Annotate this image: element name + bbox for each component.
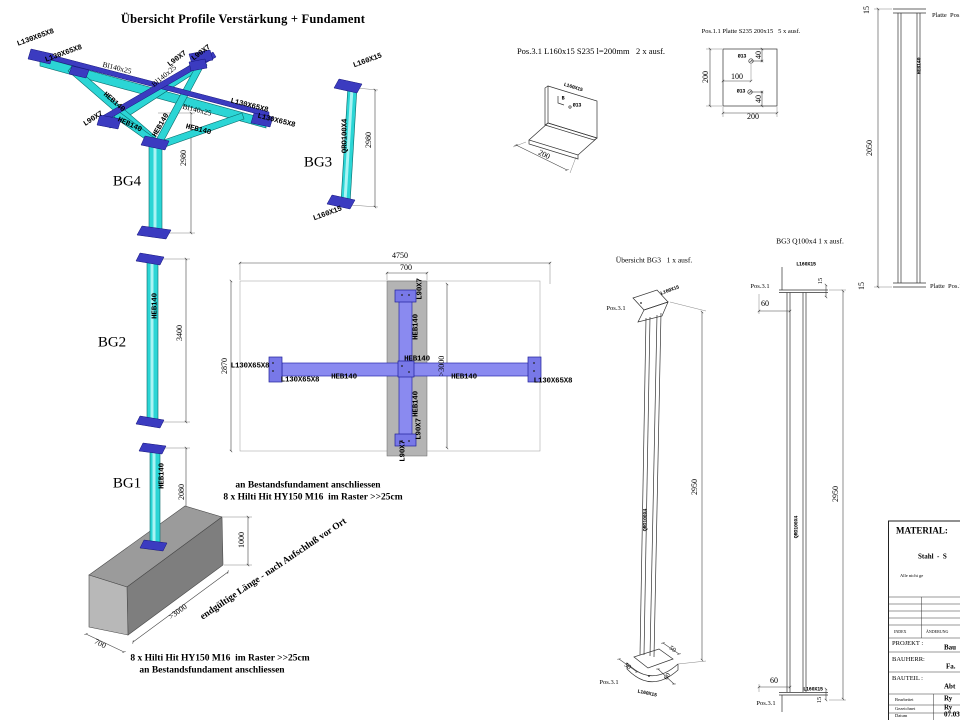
label-ubg3-dim-2950: 2950 bbox=[691, 479, 699, 495]
label-bg1-note-diag: endgültige Länge - nach Aufschluß vor Or… bbox=[199, 517, 349, 622]
label-bg4-lbl-l130-b: L130X65X8 bbox=[45, 45, 84, 65]
label-tb-projekt-value: Bau bbox=[944, 645, 956, 652]
label-rightcol-dim-bottom: 15 bbox=[858, 282, 866, 290]
label-tb-bearbeitet-value: Ry bbox=[944, 696, 952, 703]
cad-drawing-sheet: Übersicht Profile Verstärkung + Fundamen… bbox=[0, 0, 960, 720]
label-bg1-note-bottom1: 8 x Hilti Hit HY150 M16 im Raster >>25cm bbox=[130, 654, 309, 664]
label-pos11-dim-left: 200 bbox=[702, 71, 710, 83]
label-bg4-lbl-bl140-a: Bl140x25 bbox=[102, 61, 133, 75]
label-bg4-lbl-heb-c: HEB140 bbox=[152, 113, 171, 139]
label-plan-lbl-l130-left2: L130X65X8 bbox=[281, 377, 320, 385]
label-rightcol-lbl-plate-bottom: Platte Pos.1 bbox=[930, 284, 960, 291]
label-elev-pos-top: Pos.3.1 bbox=[750, 284, 769, 291]
label-plan-dim-4750: 4750 bbox=[392, 252, 408, 260]
label-bg4-lbl-bl140-b: Bl140x25 bbox=[150, 64, 177, 89]
label-tb-datum-value: 07.03.16 bbox=[944, 712, 960, 719]
label-bg2-dim-height: 3400 bbox=[176, 325, 184, 341]
label-plan-lbl-l130-left1: L130X65X8 bbox=[231, 363, 270, 371]
label-bg3-dim-height: 2980 bbox=[365, 132, 373, 148]
label-rightcol-lbl-shaft: HEB140 bbox=[918, 58, 923, 75]
label-tb-bauteil-value: Abt bbox=[944, 684, 955, 691]
label-pos31-heading: Pos.3.1 L160x15 S235 l=200mm 2 x ausf. bbox=[517, 47, 665, 56]
label-elev-dim-60-bottom: 60 bbox=[770, 677, 778, 685]
label-rightcol-dim-top: 15 bbox=[863, 6, 871, 14]
label-bg4-lbl-bl140-c: Bl140x25 bbox=[182, 103, 213, 117]
label-pos11-heading: Pos.1.1 Platte S235 200x15 5 x ausf. bbox=[702, 29, 801, 36]
label-ubg3-heading: Übersicht BG3 1 x ausf. bbox=[616, 256, 692, 264]
label-plan-lbl-l90-bottom: L90X7 bbox=[416, 418, 424, 440]
label-bg4-lbl-heb-a: HEB140 bbox=[101, 92, 125, 115]
label-bg1-lbl-shaft: HEB140 bbox=[159, 463, 167, 489]
label-pos11-dim-bottom: 200 bbox=[747, 113, 759, 121]
annotation-labels-layer: Übersicht Profile Verstärkung + Fundamen… bbox=[0, 0, 960, 720]
label-elev-dim-15-bottom: 15 bbox=[817, 697, 824, 704]
label-tb-gezeichnet-label: Gezeichnet bbox=[895, 707, 915, 712]
label-ubg3-dim-60: 60 bbox=[663, 672, 672, 681]
label-tb-bauherr-value: Fa. bbox=[946, 664, 956, 671]
label-tb-material-value: Stahl - S bbox=[918, 554, 947, 561]
label-plan-dim-3000: >3000 bbox=[438, 356, 446, 377]
label-bg1-dim-3000: >3000 bbox=[167, 603, 188, 622]
label-tb-material-note: Alle nicht ge bbox=[900, 574, 923, 579]
label-bg4-name: BG4 bbox=[113, 175, 141, 190]
label-pos31-lbl-angle: L160X15 bbox=[563, 83, 583, 94]
label-rightcol-lbl-plate-top: Platte Pos. bbox=[932, 13, 960, 20]
label-plan-dim-2870: 2870 bbox=[221, 358, 229, 374]
label-ubg3-dim-50a: 50 bbox=[622, 662, 631, 671]
label-elev-dim-2950: 2950 bbox=[832, 486, 840, 502]
label-bg1-dim-2080: 2080 bbox=[178, 484, 186, 500]
label-title: Übersicht Profile Verstärkung + Fundamen… bbox=[121, 13, 365, 26]
label-elev-pos-bottom: Pos.3.1 bbox=[756, 701, 775, 708]
label-bg1-note-top2: 8 x Hilti Hit HY150 M16 im Raster >>25cm bbox=[223, 493, 402, 503]
label-bg4-lbl-l90-c: L90X7 bbox=[83, 111, 105, 129]
label-plan-lbl-heb-bottom: HEB140 bbox=[413, 391, 421, 417]
label-plan-lbl-l90-bottom2: L90X7 bbox=[400, 440, 408, 462]
label-plan-lbl-heb-right: HEB140 bbox=[451, 374, 477, 382]
label-bg1-dim-1000: 1000 bbox=[238, 532, 246, 548]
label-pos11-dim-40a: 40 bbox=[755, 51, 763, 59]
label-bg4-lbl-l130-d: L130X65X8 bbox=[256, 114, 295, 131]
label-plan-lbl-heb-center: HEB140 bbox=[404, 356, 430, 364]
label-bg3-lbl-shaft: QRO100X4 bbox=[342, 119, 350, 153]
label-pos31-dim-200: 200 bbox=[537, 149, 551, 161]
label-tb-bauteil-label: BAUTEIL : bbox=[892, 676, 923, 683]
label-ubg3-pos-bottom: Pos.3.1 bbox=[599, 680, 618, 687]
label-tb-bauherr-label: BAUHERR: bbox=[892, 657, 925, 664]
label-plan-lbl-l130-right: L130X65X8 bbox=[534, 378, 573, 386]
label-tb-aenderung-label: ÄNDERUNG bbox=[926, 630, 948, 634]
label-bg1-note-top1: an Bestandsfundament anschliessen bbox=[235, 481, 380, 491]
label-rightcol-dim-mid: 2050 bbox=[866, 140, 874, 156]
label-bg4-lbl-heb-b: HEB140 bbox=[116, 117, 143, 135]
label-elev-dim-15-top: 15 bbox=[818, 278, 825, 285]
label-bg3-note: BG3 Q100x4 1 x ausf. bbox=[776, 237, 844, 245]
label-tb-index-label: INDEX bbox=[894, 630, 906, 634]
label-tb-projekt-label: PROJEKT : bbox=[892, 641, 923, 648]
label-ubg3-pos-top: Pos.3.1 bbox=[606, 306, 625, 313]
label-pos31-lbl-hole: Ø13 bbox=[573, 104, 581, 109]
label-bg2-lbl-shaft: HEB140 bbox=[152, 293, 160, 319]
label-bg4-lbl-l130-a: L130X65X8 bbox=[17, 29, 56, 49]
label-tb-bearbeitet-label: Bearbeitet bbox=[895, 698, 914, 703]
label-plan-lbl-heb-top: HEB140 bbox=[413, 314, 421, 340]
label-bg4-dim-height: 2980 bbox=[180, 150, 188, 166]
label-elev-dim-60-top: 60 bbox=[761, 300, 769, 308]
label-elev-lbl-bracket-top: L160X15 bbox=[796, 263, 816, 268]
label-tb-material: MATERIAL: bbox=[896, 527, 948, 536]
label-pos31-lbl-b: B bbox=[562, 97, 565, 102]
label-bg2-name: BG2 bbox=[98, 336, 126, 351]
label-bg1-dim-700: 700 bbox=[93, 638, 107, 651]
label-ubg3-lbl-bracket-bottom: L160X15 bbox=[637, 690, 657, 699]
label-elev-lbl-shaft: QRO100X4 bbox=[795, 516, 800, 538]
label-ubg3-lbl-bracket-top: L160X15 bbox=[660, 285, 680, 296]
label-bg3-lbl-plate-top: L160X15 bbox=[353, 53, 384, 70]
label-bg3-name: BG3 bbox=[304, 156, 332, 171]
label-tb-datum-label: Datum bbox=[895, 714, 907, 719]
label-pos11-hole-b: Ø13 bbox=[737, 90, 745, 95]
label-elev-lbl-bracket-bottom: L160X15 bbox=[803, 688, 823, 693]
label-bg1-name: BG1 bbox=[113, 477, 141, 492]
label-ubg3-dim-50b: 50 bbox=[667, 645, 676, 654]
label-ubg3-lbl-shaft: QRO100X4 bbox=[644, 509, 649, 531]
label-pos11-dim-100: 100 bbox=[731, 73, 743, 81]
label-bg4-lbl-l90-b: L90X7 bbox=[191, 45, 213, 64]
label-plan-dim-700: 700 bbox=[400, 264, 412, 272]
label-pos11-dim-40b: 40 bbox=[755, 95, 763, 103]
label-bg3-lbl-plate-bottom: L160X15 bbox=[313, 206, 344, 223]
label-plan-lbl-heb-left: HEB140 bbox=[331, 374, 357, 382]
label-bg4-lbl-heb-d: HEB140 bbox=[185, 124, 212, 138]
label-pos11-hole-a: Ø13 bbox=[738, 55, 746, 60]
label-bg1-note-bottom2: an Bestandsfundament anschliessen bbox=[139, 666, 284, 676]
label-plan-lbl-l90-top: L90X7 bbox=[417, 278, 425, 300]
